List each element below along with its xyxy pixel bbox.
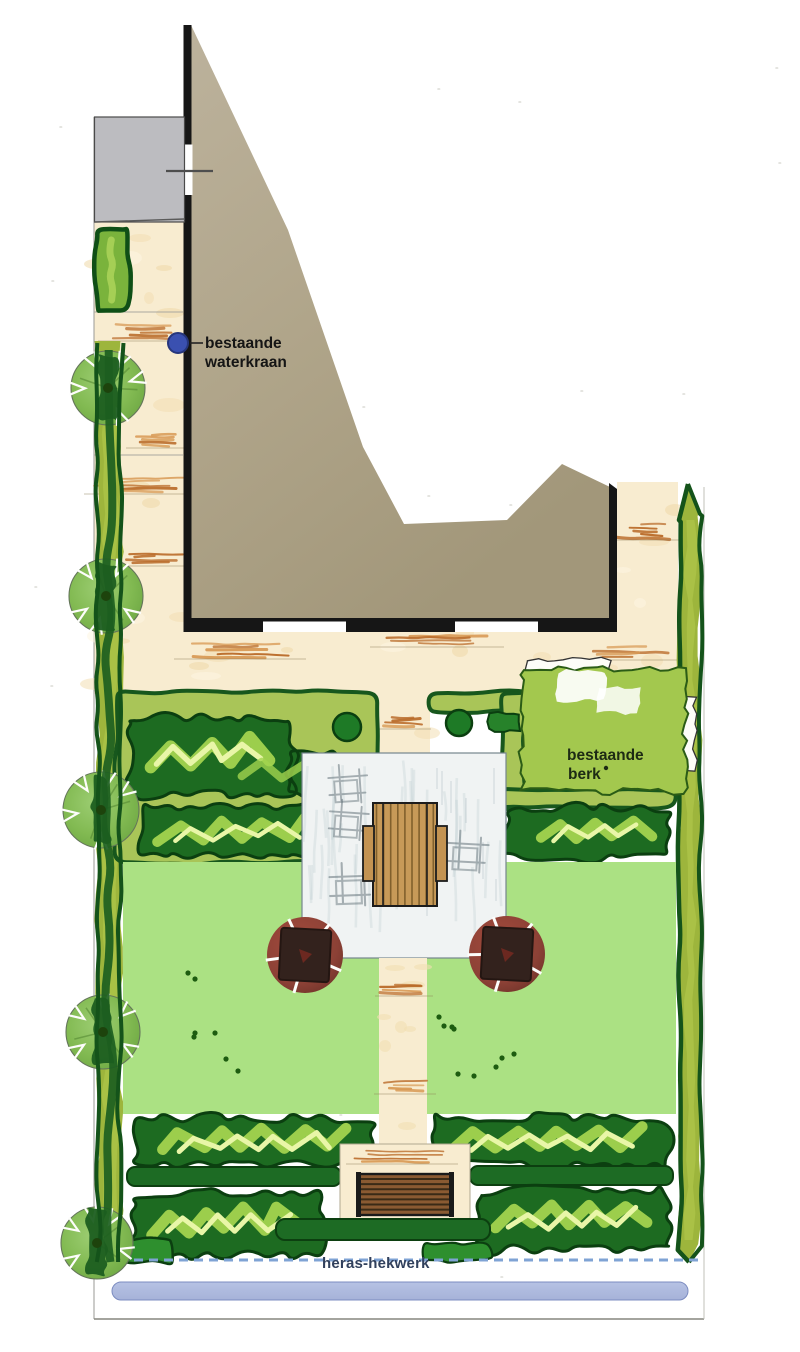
svg-text:waterkraan: waterkraan [204, 354, 287, 371]
svg-text:bestaande: bestaande [567, 747, 644, 764]
svg-text:bestaande: bestaande [205, 335, 282, 352]
svg-text:heras-hekwerk: heras-hekwerk [322, 1255, 430, 1272]
svg-text:berk: berk [568, 766, 601, 783]
